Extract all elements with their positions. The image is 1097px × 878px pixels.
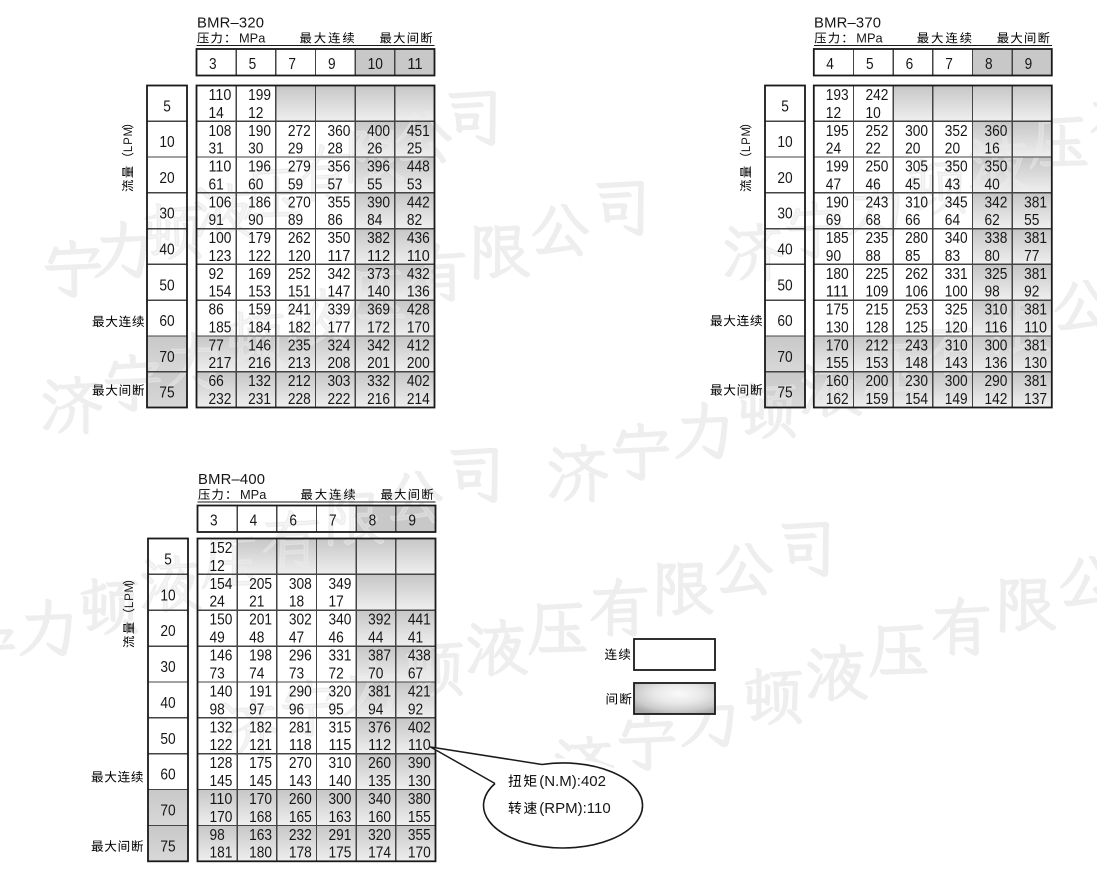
svg-text:242: 242 bbox=[865, 87, 888, 104]
svg-text:73: 73 bbox=[210, 665, 225, 682]
svg-text:43: 43 bbox=[945, 176, 960, 193]
svg-text:10: 10 bbox=[368, 56, 384, 73]
svg-text:150: 150 bbox=[210, 612, 233, 629]
svg-text:110: 110 bbox=[1024, 319, 1047, 336]
svg-text:82: 82 bbox=[407, 212, 422, 229]
svg-text:310: 310 bbox=[984, 302, 1007, 319]
svg-text:442: 442 bbox=[407, 194, 430, 211]
svg-text:20: 20 bbox=[160, 623, 176, 640]
svg-text:MPa: MPa bbox=[856, 30, 883, 45]
svg-text:24: 24 bbox=[210, 594, 226, 611]
svg-text:400: 400 bbox=[367, 123, 390, 140]
svg-text:25: 25 bbox=[407, 141, 422, 158]
svg-text:LPM: LPM bbox=[741, 126, 753, 152]
svg-text:279: 279 bbox=[288, 159, 311, 176]
svg-text:225: 225 bbox=[865, 266, 888, 283]
svg-text:20: 20 bbox=[945, 141, 961, 158]
svg-text:137: 137 bbox=[1024, 391, 1047, 408]
svg-text:LPM: LPM bbox=[123, 126, 135, 152]
svg-text:86: 86 bbox=[328, 212, 343, 229]
svg-text:120: 120 bbox=[945, 319, 968, 336]
svg-text:159: 159 bbox=[865, 391, 888, 408]
svg-text:21: 21 bbox=[249, 594, 264, 611]
svg-text:345: 345 bbox=[945, 194, 968, 211]
svg-text:159: 159 bbox=[248, 302, 271, 319]
svg-text:190: 190 bbox=[826, 194, 849, 211]
svg-text:232: 232 bbox=[289, 827, 312, 844]
svg-text:3: 3 bbox=[210, 513, 218, 530]
svg-text:4: 4 bbox=[826, 56, 834, 73]
svg-text:380: 380 bbox=[408, 791, 431, 808]
svg-text:122: 122 bbox=[210, 737, 233, 754]
svg-text:89: 89 bbox=[288, 212, 303, 229]
svg-text:163: 163 bbox=[249, 827, 272, 844]
svg-text:143: 143 bbox=[289, 773, 312, 790]
svg-text:123: 123 bbox=[209, 248, 232, 265]
svg-text:310: 310 bbox=[905, 194, 928, 211]
svg-text:116: 116 bbox=[984, 319, 1007, 336]
svg-text:342: 342 bbox=[367, 337, 390, 354]
svg-text:64: 64 bbox=[945, 212, 961, 229]
svg-text:67: 67 bbox=[408, 665, 423, 682]
svg-text:8: 8 bbox=[369, 513, 377, 530]
svg-text:60: 60 bbox=[248, 176, 264, 193]
svg-text:49: 49 bbox=[210, 630, 225, 647]
svg-text:75: 75 bbox=[159, 385, 174, 402]
svg-text:178: 178 bbox=[289, 845, 312, 862]
svg-text:80: 80 bbox=[984, 248, 1000, 265]
svg-text:136: 136 bbox=[984, 355, 1007, 372]
svg-text:340: 340 bbox=[329, 612, 352, 629]
svg-text:22: 22 bbox=[865, 141, 880, 158]
svg-text:100: 100 bbox=[945, 284, 968, 301]
svg-text:200: 200 bbox=[865, 373, 888, 390]
svg-text:(N.M):402: (N.M):402 bbox=[539, 773, 606, 790]
svg-text:145: 145 bbox=[210, 773, 233, 790]
svg-text:212: 212 bbox=[865, 337, 888, 354]
svg-text:41: 41 bbox=[408, 630, 423, 647]
svg-text:320: 320 bbox=[368, 827, 391, 844]
svg-text:40: 40 bbox=[777, 242, 793, 259]
svg-text:117: 117 bbox=[328, 248, 351, 265]
svg-text:396: 396 bbox=[367, 159, 390, 176]
svg-text:376: 376 bbox=[368, 719, 391, 736]
svg-text:310: 310 bbox=[945, 337, 968, 354]
svg-text:438: 438 bbox=[408, 648, 431, 665]
svg-text:290: 290 bbox=[984, 373, 1007, 390]
svg-text:325: 325 bbox=[984, 266, 1007, 283]
svg-text:135: 135 bbox=[368, 773, 391, 790]
svg-text:125: 125 bbox=[905, 319, 928, 336]
svg-text:92: 92 bbox=[1024, 284, 1039, 301]
svg-text:243: 243 bbox=[865, 194, 888, 211]
svg-text:128: 128 bbox=[865, 319, 888, 336]
svg-text:48: 48 bbox=[249, 630, 264, 647]
svg-text:381: 381 bbox=[1024, 337, 1047, 354]
svg-text:10: 10 bbox=[159, 134, 175, 151]
svg-text:175: 175 bbox=[249, 755, 272, 772]
svg-text:402: 402 bbox=[407, 373, 430, 390]
svg-text:98: 98 bbox=[984, 284, 999, 301]
svg-text:30: 30 bbox=[160, 659, 176, 676]
svg-text:154: 154 bbox=[210, 576, 233, 593]
svg-text:331: 331 bbox=[945, 266, 968, 283]
svg-text:315: 315 bbox=[329, 719, 352, 736]
svg-text:185: 185 bbox=[826, 230, 849, 247]
svg-text:74: 74 bbox=[249, 665, 265, 682]
svg-text:228: 228 bbox=[288, 391, 311, 408]
svg-text:94: 94 bbox=[368, 701, 384, 718]
svg-text:198: 198 bbox=[249, 648, 272, 665]
svg-text:392: 392 bbox=[368, 612, 391, 629]
svg-text:9: 9 bbox=[1025, 56, 1033, 73]
svg-text:111: 111 bbox=[826, 284, 849, 301]
svg-text:132: 132 bbox=[210, 719, 233, 736]
svg-text:216: 216 bbox=[248, 355, 271, 372]
svg-text:217: 217 bbox=[209, 355, 232, 372]
svg-text:12: 12 bbox=[826, 105, 841, 122]
svg-text:451: 451 bbox=[407, 123, 430, 140]
svg-text:70: 70 bbox=[368, 665, 384, 682]
svg-text:179: 179 bbox=[248, 230, 271, 247]
svg-text:193: 193 bbox=[826, 87, 849, 104]
svg-text:106: 106 bbox=[209, 194, 232, 211]
svg-text:121: 121 bbox=[249, 737, 272, 754]
svg-text:300: 300 bbox=[984, 337, 1007, 354]
svg-text:190: 190 bbox=[248, 123, 271, 140]
svg-text:153: 153 bbox=[248, 284, 271, 301]
svg-text:324: 324 bbox=[328, 337, 351, 354]
svg-text:165: 165 bbox=[289, 809, 312, 826]
svg-text:20: 20 bbox=[159, 170, 175, 187]
svg-text:110: 110 bbox=[209, 159, 232, 176]
svg-text:369: 369 bbox=[367, 302, 390, 319]
svg-text:296: 296 bbox=[289, 648, 312, 665]
svg-text:222: 222 bbox=[328, 391, 351, 408]
svg-text:8: 8 bbox=[985, 56, 993, 73]
svg-text:72: 72 bbox=[329, 665, 344, 682]
svg-text:70: 70 bbox=[159, 349, 175, 366]
svg-text:MPa: MPa bbox=[240, 487, 267, 502]
svg-text:231: 231 bbox=[248, 391, 271, 408]
svg-text:262: 262 bbox=[288, 230, 311, 247]
svg-text:24: 24 bbox=[826, 141, 842, 158]
svg-text:110: 110 bbox=[408, 737, 431, 754]
svg-text:360: 360 bbox=[328, 123, 351, 140]
svg-text:6: 6 bbox=[289, 513, 297, 530]
svg-text:186: 186 bbox=[248, 194, 271, 211]
svg-text:BMR–370: BMR–370 bbox=[814, 16, 881, 32]
svg-text:70: 70 bbox=[777, 349, 793, 366]
svg-text:112: 112 bbox=[368, 737, 391, 754]
svg-text:340: 340 bbox=[368, 791, 391, 808]
svg-text:300: 300 bbox=[945, 373, 968, 390]
svg-text:106: 106 bbox=[905, 284, 928, 301]
svg-text:281: 281 bbox=[289, 719, 312, 736]
svg-text:180: 180 bbox=[826, 266, 849, 283]
svg-text:352: 352 bbox=[945, 123, 968, 140]
svg-text:4: 4 bbox=[250, 513, 258, 530]
svg-text:350: 350 bbox=[328, 230, 351, 247]
svg-text:(RPM):110: (RPM):110 bbox=[539, 800, 610, 817]
svg-text:146: 146 bbox=[248, 337, 271, 354]
svg-text:349: 349 bbox=[329, 576, 352, 593]
svg-text:201: 201 bbox=[367, 355, 390, 372]
svg-text:147: 147 bbox=[328, 284, 351, 301]
svg-text:300: 300 bbox=[329, 791, 352, 808]
svg-text:155: 155 bbox=[826, 355, 849, 372]
svg-text:83: 83 bbox=[945, 248, 960, 265]
svg-text:170: 170 bbox=[408, 845, 431, 862]
svg-text:44: 44 bbox=[368, 630, 384, 647]
svg-text:5: 5 bbox=[163, 98, 171, 115]
svg-text:136: 136 bbox=[407, 284, 430, 301]
svg-text:14: 14 bbox=[209, 105, 225, 122]
svg-text:130: 130 bbox=[1024, 355, 1047, 372]
svg-text:61: 61 bbox=[209, 176, 224, 193]
svg-text:20: 20 bbox=[777, 170, 793, 187]
svg-text:57: 57 bbox=[328, 176, 343, 193]
svg-text:260: 260 bbox=[289, 791, 312, 808]
svg-text:97: 97 bbox=[249, 701, 264, 718]
svg-text:180: 180 bbox=[249, 845, 272, 862]
svg-text:338: 338 bbox=[984, 230, 1007, 247]
svg-text:155: 155 bbox=[408, 809, 431, 826]
svg-text:172: 172 bbox=[367, 319, 390, 336]
svg-text:356: 356 bbox=[328, 159, 351, 176]
svg-text:92: 92 bbox=[408, 701, 423, 718]
svg-text:17: 17 bbox=[329, 594, 344, 611]
svg-text:252: 252 bbox=[865, 123, 888, 140]
svg-text:LPM: LPM bbox=[124, 582, 136, 608]
svg-text:75: 75 bbox=[160, 838, 175, 855]
svg-text:30: 30 bbox=[248, 141, 264, 158]
svg-text:169: 169 bbox=[248, 266, 271, 283]
svg-text:62: 62 bbox=[984, 212, 999, 229]
svg-text:66: 66 bbox=[209, 373, 224, 390]
svg-text:110: 110 bbox=[210, 791, 233, 808]
svg-text:325: 325 bbox=[945, 302, 968, 319]
svg-text:108: 108 bbox=[209, 123, 232, 140]
svg-text:109: 109 bbox=[865, 284, 888, 301]
svg-text:60: 60 bbox=[160, 767, 176, 784]
svg-text:46: 46 bbox=[865, 176, 880, 193]
svg-text:175: 175 bbox=[826, 302, 849, 319]
svg-text:47: 47 bbox=[289, 630, 304, 647]
svg-text:46: 46 bbox=[329, 630, 344, 647]
svg-text:162: 162 bbox=[826, 391, 849, 408]
svg-text:66: 66 bbox=[905, 212, 920, 229]
svg-text:339: 339 bbox=[328, 302, 351, 319]
svg-text:181: 181 bbox=[210, 845, 233, 862]
svg-text:280: 280 bbox=[905, 230, 928, 247]
svg-text:170: 170 bbox=[210, 809, 233, 826]
svg-text:355: 355 bbox=[328, 194, 351, 211]
svg-text:216: 216 bbox=[367, 391, 390, 408]
svg-text:60: 60 bbox=[777, 313, 793, 330]
svg-text:50: 50 bbox=[777, 277, 793, 294]
svg-text:50: 50 bbox=[160, 731, 176, 748]
svg-text:195: 195 bbox=[826, 123, 849, 140]
svg-text:140: 140 bbox=[210, 683, 233, 700]
svg-text:70: 70 bbox=[160, 803, 176, 820]
svg-text:68: 68 bbox=[865, 212, 880, 229]
svg-text:9: 9 bbox=[328, 56, 336, 73]
svg-text:112: 112 bbox=[367, 248, 390, 265]
svg-text:122: 122 bbox=[248, 248, 271, 265]
svg-text:303: 303 bbox=[328, 373, 351, 390]
svg-text:241: 241 bbox=[288, 302, 311, 319]
svg-text:191: 191 bbox=[249, 683, 272, 700]
svg-text:381: 381 bbox=[368, 683, 391, 700]
svg-text:60: 60 bbox=[159, 313, 175, 330]
svg-text:90: 90 bbox=[826, 248, 842, 265]
svg-text:90: 90 bbox=[248, 212, 264, 229]
svg-text:160: 160 bbox=[826, 373, 849, 390]
svg-text:98: 98 bbox=[210, 701, 225, 718]
svg-text:272: 272 bbox=[288, 123, 311, 140]
svg-text:243: 243 bbox=[905, 337, 928, 354]
svg-text:253: 253 bbox=[905, 302, 928, 319]
svg-text:77: 77 bbox=[209, 337, 224, 354]
svg-text:270: 270 bbox=[288, 194, 311, 211]
svg-text:350: 350 bbox=[984, 159, 1007, 176]
svg-text:160: 160 bbox=[368, 809, 391, 826]
svg-text:12: 12 bbox=[210, 558, 225, 575]
svg-text:355: 355 bbox=[408, 827, 431, 844]
svg-text:140: 140 bbox=[329, 773, 352, 790]
svg-text:154: 154 bbox=[209, 284, 232, 301]
svg-text:331: 331 bbox=[329, 648, 352, 665]
svg-text:213: 213 bbox=[288, 355, 311, 372]
svg-text:381: 381 bbox=[1024, 266, 1047, 283]
svg-text:118: 118 bbox=[289, 737, 312, 754]
svg-text:342: 342 bbox=[328, 266, 351, 283]
svg-text:100: 100 bbox=[209, 230, 232, 247]
svg-text:153: 153 bbox=[865, 355, 888, 372]
svg-text:73: 73 bbox=[289, 665, 304, 682]
svg-text:53: 53 bbox=[407, 176, 422, 193]
svg-text:199: 199 bbox=[248, 87, 271, 104]
svg-text:151: 151 bbox=[288, 284, 311, 301]
svg-text:28: 28 bbox=[328, 141, 343, 158]
svg-text:132: 132 bbox=[248, 373, 271, 390]
svg-text:95: 95 bbox=[329, 701, 344, 718]
svg-text:200: 200 bbox=[407, 355, 430, 372]
svg-text:235: 235 bbox=[288, 337, 311, 354]
svg-text:214: 214 bbox=[407, 391, 430, 408]
svg-text:9: 9 bbox=[408, 513, 416, 530]
svg-text:55: 55 bbox=[367, 176, 382, 193]
svg-text:196: 196 bbox=[248, 159, 271, 176]
svg-text:11: 11 bbox=[407, 56, 422, 73]
svg-text:86: 86 bbox=[209, 302, 224, 319]
svg-text:170: 170 bbox=[407, 319, 430, 336]
svg-text:421: 421 bbox=[408, 683, 431, 700]
svg-text:130: 130 bbox=[826, 319, 849, 336]
svg-text:31: 31 bbox=[209, 141, 224, 158]
svg-text:92: 92 bbox=[209, 266, 224, 283]
svg-text:91: 91 bbox=[209, 212, 224, 229]
svg-text:381: 381 bbox=[1024, 373, 1047, 390]
svg-text:120: 120 bbox=[288, 248, 311, 265]
svg-text:320: 320 bbox=[329, 683, 352, 700]
svg-text:260: 260 bbox=[368, 755, 391, 772]
svg-text:436: 436 bbox=[407, 230, 430, 247]
svg-text:170: 170 bbox=[249, 791, 272, 808]
svg-text:55: 55 bbox=[1024, 212, 1039, 229]
svg-text:168: 168 bbox=[249, 809, 272, 826]
svg-text:360: 360 bbox=[984, 123, 1007, 140]
svg-text:7: 7 bbox=[288, 56, 296, 73]
svg-text:387: 387 bbox=[368, 648, 391, 665]
svg-text:382: 382 bbox=[367, 230, 390, 247]
svg-text:390: 390 bbox=[408, 755, 431, 772]
svg-text:291: 291 bbox=[329, 827, 352, 844]
svg-text:212: 212 bbox=[288, 373, 311, 390]
svg-text:45: 45 bbox=[905, 176, 920, 193]
svg-text:201: 201 bbox=[249, 612, 272, 629]
svg-text:7: 7 bbox=[329, 513, 337, 530]
svg-text:215: 215 bbox=[865, 302, 888, 319]
svg-text:10: 10 bbox=[865, 105, 881, 122]
svg-text:98: 98 bbox=[210, 827, 225, 844]
svg-text:185: 185 bbox=[209, 319, 232, 336]
svg-text:16: 16 bbox=[984, 141, 999, 158]
svg-text:BMR–400: BMR–400 bbox=[198, 472, 265, 488]
svg-text:5: 5 bbox=[866, 56, 874, 73]
svg-text:130: 130 bbox=[408, 773, 431, 790]
svg-text:381: 381 bbox=[1024, 230, 1047, 247]
svg-text:342: 342 bbox=[984, 194, 1007, 211]
svg-text:140: 140 bbox=[367, 284, 390, 301]
svg-text:110: 110 bbox=[209, 87, 232, 104]
svg-text:18: 18 bbox=[289, 594, 304, 611]
svg-text:270: 270 bbox=[289, 755, 312, 772]
svg-text:402: 402 bbox=[408, 719, 431, 736]
svg-text:26: 26 bbox=[367, 141, 382, 158]
svg-text:232: 232 bbox=[209, 391, 232, 408]
svg-text:145: 145 bbox=[249, 773, 272, 790]
svg-text:5: 5 bbox=[164, 551, 172, 568]
svg-text:305: 305 bbox=[905, 159, 928, 176]
svg-text:149: 149 bbox=[945, 391, 968, 408]
svg-text:290: 290 bbox=[289, 683, 312, 700]
svg-text:110: 110 bbox=[407, 248, 430, 265]
svg-text:350: 350 bbox=[945, 159, 968, 176]
svg-text:184: 184 bbox=[248, 319, 271, 336]
svg-text:143: 143 bbox=[945, 355, 968, 372]
svg-text:428: 428 bbox=[407, 302, 430, 319]
svg-text:302: 302 bbox=[289, 612, 312, 629]
svg-text:146: 146 bbox=[210, 648, 233, 665]
svg-text:3: 3 bbox=[209, 56, 217, 73]
svg-text:432: 432 bbox=[407, 266, 430, 283]
svg-text:175: 175 bbox=[329, 845, 352, 862]
svg-text:235: 235 bbox=[865, 230, 888, 247]
svg-text:262: 262 bbox=[905, 266, 928, 283]
svg-text:50: 50 bbox=[159, 277, 175, 294]
svg-text:152: 152 bbox=[210, 540, 233, 557]
svg-text:381: 381 bbox=[1024, 302, 1047, 319]
svg-text:29: 29 bbox=[288, 141, 303, 158]
svg-text:441: 441 bbox=[408, 612, 431, 629]
svg-text:128: 128 bbox=[210, 755, 233, 772]
svg-text:182: 182 bbox=[249, 719, 272, 736]
svg-text:115: 115 bbox=[329, 737, 352, 754]
svg-text:340: 340 bbox=[945, 230, 968, 247]
svg-text:5: 5 bbox=[781, 98, 789, 115]
